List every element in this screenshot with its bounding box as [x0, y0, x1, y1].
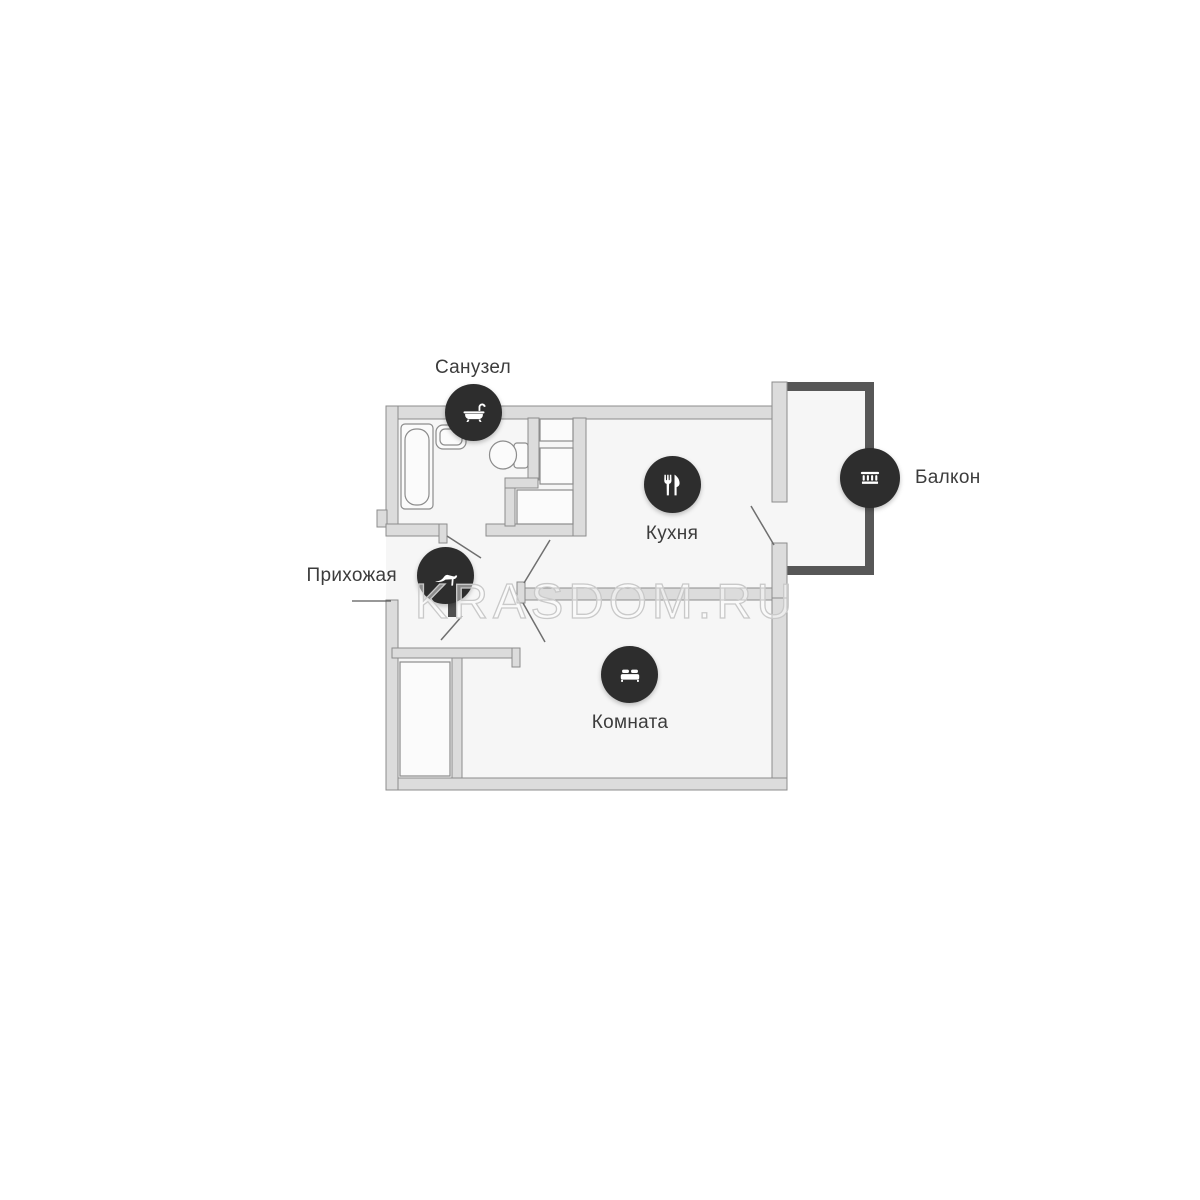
shelf-box-lower: [540, 448, 573, 484]
floorplan-page: Санузел Прихожая Кухня Комната Балкон KR…: [0, 0, 1200, 1200]
shelf-box-upper: [540, 419, 573, 441]
kitchen-badge: [644, 456, 701, 513]
room-label: Комната: [592, 712, 669, 734]
balcony-badge: [840, 448, 900, 508]
hallway-label: Прихожая: [307, 565, 397, 587]
wardrobe: [400, 662, 450, 776]
toilet-bowl: [490, 441, 517, 469]
room-badge: [601, 646, 658, 703]
bathtub-icon: [460, 399, 488, 427]
bathroom-badge: [445, 384, 502, 441]
balcony-label: Балкон: [915, 467, 981, 489]
niche-cabinet: [517, 490, 573, 524]
watermark: KRASDOM.RU: [415, 574, 797, 630]
balcony-railing-icon: [856, 464, 884, 492]
bathroom-label: Санузел: [435, 357, 511, 379]
kitchen-label: Кухня: [646, 523, 698, 545]
bed-icon: [616, 661, 644, 689]
fork-knife-icon: [659, 471, 687, 499]
